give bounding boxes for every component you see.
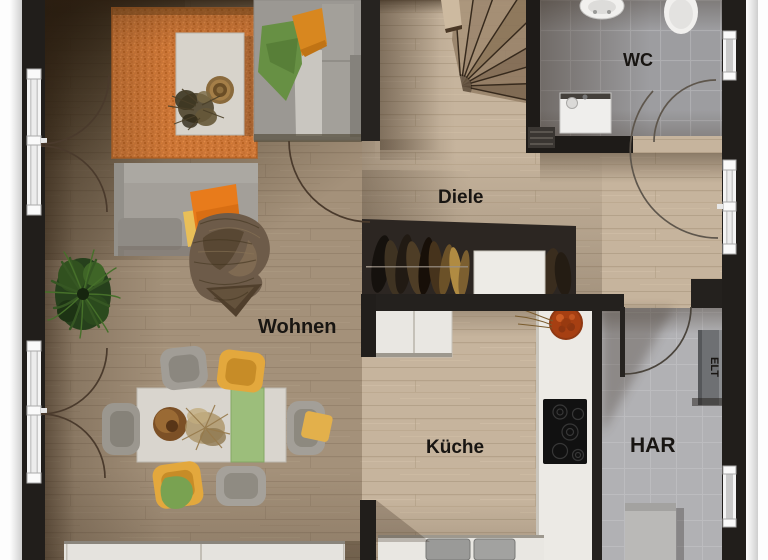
svg-text:Küche: Küche <box>426 437 484 458</box>
svg-text:ELT: ELT <box>708 357 720 377</box>
svg-text:WC: WC <box>623 50 653 70</box>
svg-text:Wohnen: Wohnen <box>258 316 337 338</box>
svg-text:HAR: HAR <box>630 434 676 457</box>
svg-text:Diele: Diele <box>438 187 483 208</box>
